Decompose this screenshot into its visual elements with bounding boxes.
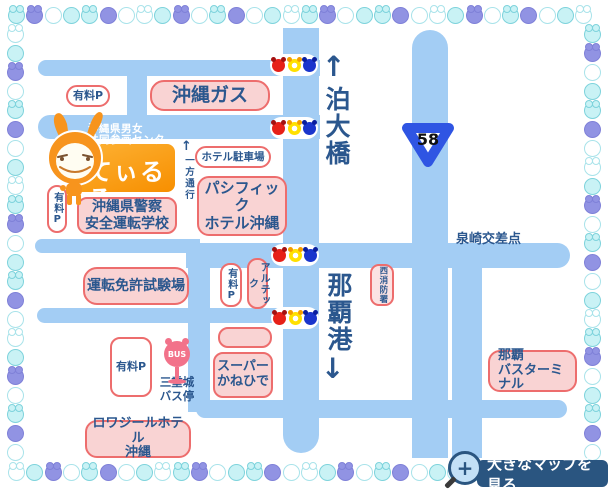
tiruru-mascot [28, 110, 123, 210]
bead-icon [7, 292, 24, 309]
bead-icon [584, 83, 601, 100]
bead-icon [7, 159, 24, 176]
bead-icon [81, 7, 98, 24]
bead-icon [7, 330, 24, 347]
bead-icon [7, 273, 24, 290]
bead-icon [228, 464, 245, 481]
artec-box: アルテック [247, 258, 268, 309]
bead-icon [337, 7, 354, 24]
bead-icon [411, 464, 428, 481]
signal-blue-light [304, 312, 317, 325]
bead-icon [246, 464, 263, 481]
bead-icon [411, 7, 428, 24]
bead-icon [246, 7, 263, 24]
okinawa-gas-box: 沖縄ガス [150, 80, 270, 111]
route-58-shield: 58 [399, 120, 457, 172]
signal-yellow-light [289, 249, 302, 262]
hotel-parking-label: ホテル駐車場 [202, 151, 265, 163]
bead-icon [539, 7, 556, 24]
bead-icon [584, 235, 601, 252]
bead-icon [7, 197, 24, 214]
bead-icon [447, 7, 464, 24]
bead-icon [374, 7, 391, 24]
bead-icon [26, 464, 43, 481]
tomari-bridge-label: 泊大橋 [318, 86, 354, 167]
bead-icon [429, 464, 446, 481]
naha-bus-terminal-box: 那覇 バスターミナル [488, 350, 577, 392]
bead-icon [154, 464, 171, 481]
bead-icon [584, 273, 601, 290]
bead-icon [7, 444, 24, 461]
road-terminal-vertical [452, 262, 482, 458]
license-center-box: 運転免許試験場 [83, 267, 189, 305]
bead-icon [7, 235, 24, 252]
traffic-signal-icon [271, 244, 319, 266]
bead-icon [7, 368, 24, 385]
hotel-parking-box: ホテル駐車場 [195, 146, 271, 168]
bead-icon [228, 7, 245, 24]
pacific-hotel-box: パシフィック ホテル沖縄 [197, 176, 287, 236]
road-bottom-horizontal [196, 400, 567, 418]
signal-red-light [272, 122, 285, 135]
bead-icon [7, 64, 24, 81]
bead-icon [209, 464, 226, 481]
bead-icon [7, 311, 24, 328]
road-main-vertical [283, 28, 319, 453]
bead-icon [520, 7, 537, 24]
bead-icon [392, 7, 409, 24]
bead-icon [584, 368, 601, 385]
route-58-number: 58 [417, 130, 439, 149]
loisir-hotel-line1: ロワジールホテル [87, 417, 189, 447]
bead-icon [7, 178, 24, 195]
view-large-map-label: 大きなマップを見る [487, 453, 598, 489]
bead-icon [319, 7, 336, 24]
bead-icon [7, 26, 24, 43]
naha-port-arrow-icon: ↓ [321, 352, 344, 385]
signal-red-light [273, 312, 286, 325]
paid-parking-mid-label: 有料P [225, 268, 237, 302]
bead-icon [7, 254, 24, 271]
signal-blue-light [304, 249, 317, 262]
bead-icon [7, 121, 24, 138]
bead-icon [584, 349, 601, 366]
bus-sign-circle: BUS [164, 341, 190, 367]
naha-port-label: 那覇港 [320, 272, 356, 353]
bead-icon [45, 464, 62, 481]
bead-icon [584, 64, 601, 81]
okinawa-gas-label: 沖縄ガス [172, 85, 248, 107]
bead-icon [264, 7, 281, 24]
bead-icon [356, 7, 373, 24]
bead-icon [584, 425, 601, 442]
bead-icon [7, 349, 24, 366]
road-izumizaki-west [35, 239, 200, 253]
bead-icon [584, 159, 601, 176]
police-school-line2: 安全運転学校 [85, 216, 169, 232]
bead-icon [584, 330, 601, 347]
signal-yellow-light [288, 122, 301, 135]
magnifier-icon[interactable]: + [448, 451, 482, 485]
bus-stop-sign: BUS [159, 341, 195, 385]
bead-icon [63, 7, 80, 24]
paid-parking-mid-box: 有料P [220, 263, 242, 307]
bead-icon [7, 83, 24, 100]
izumizaki-intersection-label: 泉崎交差点 [456, 228, 521, 247]
bead-icon [575, 7, 592, 24]
traffic-signal-icon [271, 307, 319, 329]
bead-icon [154, 7, 171, 24]
bead-icon [8, 464, 25, 481]
bead-icon [584, 216, 601, 233]
bead-icon [173, 464, 190, 481]
traffic-signal-icon [270, 54, 318, 76]
super-kanehide-line2: かねひで [217, 375, 269, 390]
bead-icon [319, 464, 336, 481]
fire-station-box: 西消防署 [370, 264, 394, 306]
bus-sign-label: BUS [168, 350, 186, 359]
bead-icon [81, 464, 98, 481]
paid-parking-bottom-label: 有料P [116, 361, 146, 374]
bead-icon [584, 406, 601, 423]
unlabeled-building-box [218, 327, 272, 348]
pacific-hotel-line1: パシフィック [199, 180, 285, 215]
bead-icon [484, 7, 501, 24]
bead-icon [584, 292, 601, 309]
paid-parking-bottom-box: 有料P [110, 337, 152, 397]
bead-icon [7, 406, 24, 423]
bead-icon [301, 464, 318, 481]
bus-stop-line2: バス停 [154, 390, 200, 404]
bead-icon [584, 387, 601, 404]
bead-icon [7, 387, 24, 404]
bead-icon [337, 464, 354, 481]
magnifier-plus: + [457, 456, 474, 480]
bead-icon [584, 178, 601, 195]
bead-icon [584, 26, 601, 43]
bead-icon [356, 464, 373, 481]
bead-icon [7, 45, 24, 62]
bead-icon [100, 7, 117, 24]
signal-yellow-light [288, 59, 301, 72]
bus-sign-base [168, 379, 186, 384]
bead-icon [173, 7, 190, 24]
bus-sign-pole [175, 367, 179, 379]
bead-icon [45, 7, 62, 24]
bead-icon [63, 464, 80, 481]
bead-icon [584, 140, 601, 157]
bead-icon [7, 102, 24, 119]
pacific-hotel-line2: ホテル沖縄 [204, 215, 279, 232]
bead-icon [584, 197, 601, 214]
signal-blue-light [303, 59, 316, 72]
fire-station-label: 西消防署 [377, 266, 387, 304]
bead-icon [283, 7, 300, 24]
bead-icon [8, 7, 25, 24]
bead-icon [466, 7, 483, 24]
bead-icon [7, 216, 24, 233]
bead-icon [584, 45, 601, 62]
naha-bus-terminal-line2: バスターミナル [498, 364, 575, 394]
bead-icon [392, 464, 409, 481]
bead-icon [191, 7, 208, 24]
one-way-arrow-icon: ↑ [181, 139, 192, 154]
bead-icon [191, 464, 208, 481]
access-map: ↑ 泊大橋 那覇港 ↓ 泉崎交差点 ↑ 一方通行 58 有料P 沖縄ガス 沖縄県… [0, 0, 608, 489]
bead-icon [26, 7, 43, 24]
bead-icon [301, 7, 318, 24]
paid-parking-top-label: 有料P [73, 90, 103, 103]
bead-icon [584, 102, 601, 119]
bead-icon [118, 464, 135, 481]
bead-icon [502, 7, 519, 24]
road-route58-vertical [412, 30, 448, 458]
one-way-label: 一方通行 [181, 155, 195, 201]
bead-icon [584, 121, 601, 138]
bead-icon [209, 7, 226, 24]
bead-icon [136, 7, 153, 24]
bead-icon [264, 464, 281, 481]
view-large-map-button[interactable]: 大きなマップを見る [477, 460, 608, 487]
signal-yellow-light [289, 312, 302, 325]
bead-icon [584, 254, 601, 271]
artec-label: アルテック [246, 260, 269, 307]
loisir-hotel-box: ロワジールホテル 沖縄 [85, 420, 191, 458]
super-kanehide-line1: スーパー [217, 360, 269, 375]
bead-icon [7, 425, 24, 442]
signal-red-light [272, 59, 285, 72]
naha-bus-terminal-line1: 那覇 [498, 349, 524, 364]
super-kanehide-box: スーパー かねひで [213, 352, 273, 398]
bead-icon [118, 7, 135, 24]
bead-icon [374, 464, 391, 481]
bead-icon [7, 140, 24, 157]
traffic-signal-icon [270, 117, 318, 139]
paid-parking-top-box: 有料P [66, 85, 110, 107]
tomari-bridge-arrow-icon: ↑ [322, 50, 345, 83]
bead-icon [429, 7, 446, 24]
bead-icon [584, 311, 601, 328]
license-center-label: 運転免許試験場 [87, 278, 185, 294]
bead-icon [283, 464, 300, 481]
loisir-hotel-line2: 沖縄 [125, 446, 151, 461]
bead-icon [557, 7, 574, 24]
bead-icon [100, 464, 117, 481]
signal-blue-light [303, 122, 316, 135]
signal-red-light [273, 249, 286, 262]
bead-icon [136, 464, 153, 481]
